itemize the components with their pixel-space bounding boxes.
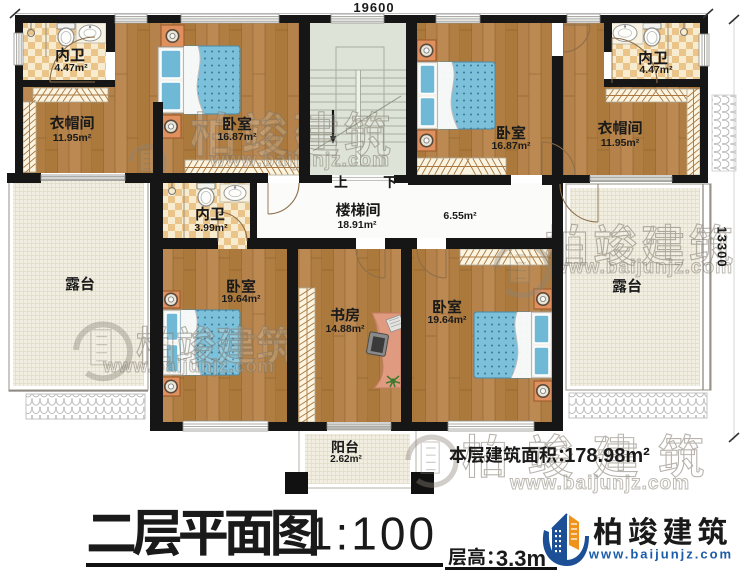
svg-text:1:100: 1:100	[307, 508, 437, 560]
svg-text:www.baijunjz.com: www.baijunjz.com	[509, 473, 690, 494]
svg-text:18.91m²: 18.91m²	[337, 219, 377, 231]
svg-text:www.baijunjz.com: www.baijunjz.com	[588, 547, 733, 562]
svg-text:13300: 13300	[714, 226, 729, 267]
svg-text:19.64m²: 19.64m²	[221, 293, 261, 305]
svg-text:14.88m²: 14.88m²	[325, 323, 365, 335]
svg-text:11.95m²: 11.95m²	[53, 132, 92, 144]
svg-text:4.47m²: 4.47m²	[54, 62, 88, 74]
svg-text:19600: 19600	[353, 0, 394, 15]
svg-text:www.baijunjz.com: www.baijunjz.com	[552, 257, 733, 278]
svg-text:178.98m²: 178.98m²	[564, 445, 650, 467]
svg-text:4.47m²: 4.47m²	[639, 64, 673, 76]
svg-text:19.64m²: 19.64m²	[427, 314, 467, 326]
svg-text:2.62m²: 2.62m²	[330, 454, 362, 465]
svg-text:3.99m²: 3.99m²	[194, 222, 228, 234]
svg-text:6.55m²: 6.55m²	[443, 210, 477, 222]
svg-text:16.87m²: 16.87m²	[491, 140, 531, 152]
svg-text:16.87m²: 16.87m²	[217, 131, 257, 143]
svg-text:11.95m²: 11.95m²	[601, 137, 640, 149]
svg-text:www.baijunjz.com: www.baijunjz.com	[102, 356, 274, 376]
